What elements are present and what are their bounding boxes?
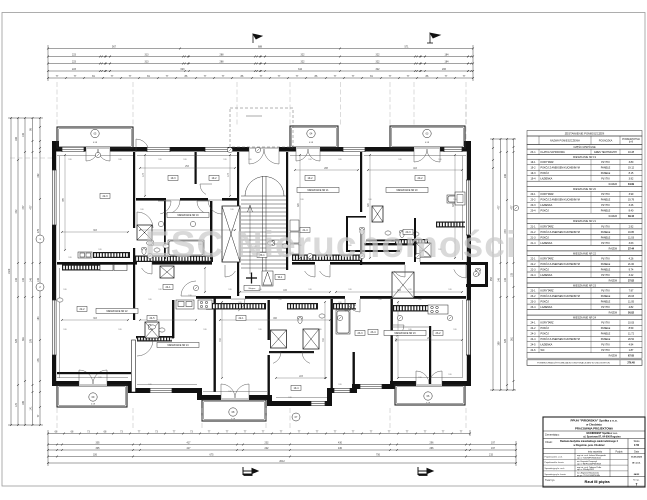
svg-text:04/23: 04/23	[634, 473, 640, 476]
svg-text:305: 305	[96, 442, 101, 445]
svg-text:PŁYTKI: PŁYTKI	[601, 257, 610, 260]
svg-text:623: 623	[181, 68, 186, 71]
svg-text:MIESZKANIE NR 21: MIESZKANIE NR 21	[307, 189, 329, 192]
svg-text:PANELE: PANELE	[601, 268, 611, 271]
svg-text:10.03: 10.03	[628, 322, 635, 325]
svg-text:20-3: 20-3	[531, 204, 537, 207]
svg-text:296: 296	[430, 447, 435, 450]
svg-text:189: 189	[22, 400, 25, 405]
svg-text:KORYTARZ: KORYTARZ	[541, 193, 555, 196]
svg-text:23-3: 23-3	[357, 332, 363, 335]
svg-text:POKÓJ: POKÓJ	[541, 301, 550, 304]
svg-text:22-2: 22-2	[79, 308, 85, 311]
svg-text:477: 477	[511, 205, 514, 210]
svg-text:23-4: 23-4	[370, 331, 376, 334]
svg-text:50.82: 50.82	[628, 312, 635, 315]
svg-text:43.28: 43.28	[628, 151, 635, 154]
svg-text:PRACOWNIA PROJEKTOWA: PRACOWNIA PROJEKTOWA	[575, 427, 613, 431]
svg-text:PANELE: PANELE	[601, 210, 611, 213]
svg-text:223: 223	[72, 61, 77, 64]
svg-text:PANELE: PANELE	[601, 199, 611, 202]
svg-text:326: 326	[93, 454, 98, 457]
svg-text:[m²]: [m²]	[629, 141, 633, 144]
svg-text:KORYTARZ: KORYTARZ	[541, 290, 555, 293]
svg-text:RAZEM: RAZEM	[609, 312, 617, 315]
svg-text:PŁYTKI: PŁYTKI	[601, 290, 610, 293]
svg-text:16.06.2023: 16.06.2023	[631, 457, 643, 459]
svg-text:PŁYTKI: PŁYTKI	[601, 161, 610, 164]
svg-text:29.52: 29.52	[628, 338, 635, 341]
svg-text:19.86: 19.86	[628, 231, 635, 234]
svg-text:3.22: 3.22	[629, 274, 634, 277]
svg-text:39.44: 39.44	[628, 215, 635, 218]
svg-text:RAZEM: RAZEM	[609, 215, 617, 218]
svg-text:29.03: 29.03	[628, 295, 635, 298]
svg-text:180: 180	[15, 136, 18, 141]
svg-text:Data: Data	[634, 450, 640, 453]
svg-text:378: 378	[30, 338, 33, 343]
svg-text:276.48: 276.48	[627, 362, 635, 365]
svg-text:361: 361	[511, 336, 514, 341]
svg-text:MIESZKANIE NR 22: MIESZKANIE NR 22	[106, 310, 128, 313]
svg-text:22-2: 22-2	[531, 263, 537, 266]
svg-text:ŁAZIENKA: ŁAZIENKA	[541, 178, 553, 181]
svg-text:146: 146	[22, 132, 25, 137]
svg-text:19-4: 19-4	[531, 178, 537, 181]
svg-text:37.82: 37.82	[628, 279, 635, 282]
svg-text:MIESZKANIE NR 22: MIESZKANIE NR 22	[573, 252, 597, 255]
svg-text:KORYTARZ: KORYTARZ	[541, 257, 555, 260]
svg-text:20-2: 20-2	[417, 177, 423, 180]
svg-text:W. arch.: W. arch.	[632, 462, 641, 464]
svg-text:24-5: 24-5	[531, 344, 537, 347]
svg-text:POSADZKA: POSADZKA	[599, 139, 613, 142]
svg-text:477: 477	[498, 205, 501, 210]
svg-text:POKÓJ: POKÓJ	[541, 327, 550, 330]
svg-text:19-3: 19-3	[531, 172, 537, 175]
svg-text:POKÓJ Z ANEKSEM KUCHENNYM: POKÓJ Z ANEKSEM KUCHENNYM	[541, 295, 580, 298]
svg-text:POKÓJ Z ANEKSEM KUCHENNYM: POKÓJ Z ANEKSEM KUCHENNYM	[541, 199, 580, 202]
svg-text:23-2: 23-2	[435, 332, 441, 335]
svg-text:PŁYTKI: PŁYTKI	[601, 242, 610, 245]
svg-text:378: 378	[504, 338, 507, 343]
svg-text:146: 146	[498, 277, 501, 282]
svg-text:184: 184	[445, 61, 450, 64]
svg-text:202: 202	[265, 442, 270, 445]
svg-text:34.99: 34.99	[628, 183, 635, 186]
svg-text:146: 146	[37, 277, 40, 282]
svg-text:202: 202	[265, 447, 270, 450]
svg-text:197: 197	[491, 447, 496, 450]
svg-text:PANELE: PANELE	[601, 263, 611, 266]
svg-text:GRES TECHNICZNY: GRES TECHNICZNY	[594, 151, 618, 154]
svg-text:344: 344	[298, 68, 303, 71]
svg-text:MIESZKANIE NR 19: MIESZKANIE NR 19	[177, 214, 199, 217]
svg-text:ŁAZIENKA: ŁAZIENKA	[541, 274, 553, 277]
svg-text:PŁYTKI: PŁYTKI	[601, 193, 610, 196]
svg-text:21-3: 21-3	[531, 236, 537, 239]
svg-text:Budowa budynku mieszkalnego wi: Budowa budynku mieszkalnego wielorodzinn…	[560, 440, 618, 443]
svg-text:202: 202	[37, 173, 40, 178]
svg-text:288: 288	[220, 61, 225, 64]
svg-text:146: 146	[30, 277, 33, 282]
svg-text:W-1: W-1	[278, 276, 283, 279]
svg-text:MIESZKANIE NR 19: MIESZKANIE NR 19	[573, 156, 597, 159]
svg-text:3.63: 3.63	[629, 242, 634, 245]
svg-text:223: 223	[72, 54, 77, 57]
svg-text:Rzut III piętra: Rzut III piętra	[584, 479, 610, 484]
svg-text:ŁAZIENKA: ŁAZIENKA	[541, 344, 553, 347]
svg-text:442: 442	[15, 209, 18, 214]
svg-text:po upr. 7131-15/86/PW-Mki: po upr. 7131-15/86/PW-Mki	[577, 474, 601, 477]
svg-text:PŁYTKI: PŁYTKI	[601, 349, 610, 352]
svg-text:7.97: 7.97	[629, 290, 634, 293]
svg-text:KORYTARZ: KORYTARZ	[541, 161, 555, 164]
svg-text:PANELE: PANELE	[601, 236, 611, 239]
svg-text:19-2: 19-2	[531, 167, 537, 170]
svg-text:322: 322	[301, 54, 306, 57]
svg-text:184: 184	[37, 316, 40, 321]
svg-text:1.87: 1.87	[629, 349, 634, 352]
svg-text:1:50: 1:50	[634, 443, 640, 447]
svg-text:POKÓJ: POKÓJ	[541, 268, 550, 271]
svg-text:22-3: 22-3	[102, 195, 108, 198]
svg-text:417: 417	[187, 442, 192, 445]
svg-text:Podpis: Podpis	[615, 451, 623, 453]
svg-text:imię nazwisko: imię nazwisko	[588, 451, 603, 453]
svg-text:ZESTAWIENIE POMIESZCZEŃ: ZESTAWIENIE POMIESZCZEŃ	[565, 132, 605, 136]
svg-text:313: 313	[145, 61, 150, 64]
svg-text:Nr rys.: Nr rys.	[633, 478, 640, 481]
svg-text:23-4: 23-4	[531, 306, 537, 309]
svg-text:CZĘŚCI WSPÓLNE: CZĘŚCI WSPÓLNE	[573, 146, 596, 149]
svg-text:Treść rys.: Treść rys.	[545, 479, 555, 482]
svg-text:675: 675	[210, 454, 215, 457]
svg-text:19.79: 19.79	[628, 199, 635, 202]
svg-text:19-2: 19-2	[211, 177, 217, 180]
svg-text:PPUH "PIROŃSKA" Spółka z o.o.: PPUH "PIROŃSKA" Spółka z o.o.	[570, 418, 617, 423]
svg-text:275: 275	[37, 228, 40, 233]
svg-text:POKÓJ Z ANEKSEM KUCHENNYM: POKÓJ Z ANEKSEM KUCHENNYM	[541, 263, 580, 266]
svg-text:19-3: 19-3	[170, 177, 176, 180]
svg-text:MIESZKANIE NR 24: MIESZKANIE NR 24	[573, 317, 597, 320]
svg-text:24-4: 24-4	[531, 338, 537, 341]
svg-text:417: 417	[187, 447, 192, 450]
svg-text:3.80: 3.80	[629, 161, 634, 164]
svg-text:8.59: 8.59	[629, 327, 634, 330]
svg-text:PANELE: PANELE	[601, 295, 611, 298]
svg-text:PŁYTKI: PŁYTKI	[601, 178, 610, 181]
svg-text:21-2: 21-2	[531, 231, 537, 234]
svg-text:296: 296	[430, 442, 435, 445]
svg-text:20-1: 20-1	[531, 193, 537, 196]
svg-text:23-1: 23-1	[531, 290, 537, 293]
svg-text:ESC Nieruchomości: ESC Nieruchomości	[145, 224, 517, 265]
svg-text:24-1: 24-1	[531, 322, 537, 325]
svg-text:PŁYTKI: PŁYTKI	[601, 274, 610, 277]
svg-text:477: 477	[22, 205, 25, 210]
svg-text:288: 288	[220, 54, 225, 57]
svg-text:223: 223	[72, 68, 77, 71]
svg-text:upr. nr 55/wlkp/2012: upr. nr 55/wlkp/2012	[577, 468, 594, 471]
svg-text:3.92: 3.92	[629, 178, 634, 181]
svg-text:378: 378	[15, 338, 18, 343]
svg-text:MIESZKANIE NR 21: MIESZKANIE NR 21	[573, 220, 597, 223]
svg-text:POKÓJ Z ANEKSEM KUCHENNYM: POKÓJ Z ANEKSEM KUCHENNYM	[541, 231, 580, 234]
svg-text:PŁYTKI: PŁYTKI	[601, 204, 610, 207]
svg-text:24-3: 24-3	[531, 333, 537, 336]
svg-text:37.44: 37.44	[628, 247, 635, 250]
svg-text:PŁYTKI: PŁYTKI	[601, 225, 610, 228]
svg-text:PANELE: PANELE	[601, 167, 611, 170]
svg-text:RAZEM: RAZEM	[609, 183, 617, 186]
svg-text:PANELE: PANELE	[601, 338, 611, 341]
svg-text:146: 146	[15, 277, 18, 282]
svg-text:3.26: 3.26	[629, 204, 634, 207]
svg-text:430: 430	[338, 447, 343, 450]
svg-text:22-1: 22-1	[238, 317, 244, 320]
svg-text:20-2: 20-2	[531, 199, 537, 202]
svg-text:4.94: 4.94	[629, 344, 634, 347]
svg-text:4.26: 4.26	[629, 257, 634, 260]
svg-text:197: 197	[491, 442, 496, 445]
svg-text:KORYTARZ: KORYTARZ	[541, 322, 555, 325]
svg-text:22-4: 22-4	[531, 274, 537, 277]
svg-text:24-1: 24-1	[165, 286, 171, 289]
svg-text:688: 688	[258, 46, 263, 49]
svg-text:NAZWA POMIESZCZENIA: NAZWA POMIESZCZENIA	[550, 139, 580, 142]
svg-text:7: 7	[636, 482, 638, 486]
svg-text:upr. nr 7131/WPOKK/4/2021: upr. nr 7131/WPOKK/4/2021	[577, 457, 601, 460]
svg-text:24-2: 24-2	[531, 327, 537, 330]
svg-text:POKÓJ Z ANEKSEM KUCHENNYM: POKÓJ Z ANEKSEM KUCHENNYM	[541, 338, 580, 341]
svg-text:103: 103	[511, 272, 514, 277]
svg-text:Sprawdzający br. arch.: Sprawdzający br. arch.	[545, 468, 566, 470]
svg-text:PANELE: PANELE	[601, 327, 611, 330]
svg-text:206: 206	[504, 173, 507, 178]
svg-text:POKÓJ Z ANEKSEM KUCHENNYM: POKÓJ Z ANEKSEM KUCHENNYM	[541, 167, 580, 170]
svg-text:322: 322	[376, 54, 381, 57]
svg-text:1320: 1320	[8, 268, 11, 274]
svg-text:ŁAZIENKA: ŁAZIENKA	[541, 204, 553, 207]
svg-text:Projektował br. arch.: Projektował br. arch.	[545, 455, 564, 458]
svg-text:3.99: 3.99	[629, 193, 634, 196]
svg-text:Skala: Skala	[634, 441, 640, 443]
svg-text:Obiekt:: Obiekt:	[545, 441, 553, 444]
svg-text:PANELE: PANELE	[601, 172, 611, 175]
svg-text:477: 477	[30, 205, 33, 210]
svg-text:19-1: 19-1	[531, 161, 537, 164]
svg-text:399: 399	[498, 341, 501, 346]
svg-text:22-3: 22-3	[531, 268, 537, 271]
svg-text:11.72: 11.72	[628, 333, 635, 336]
svg-text:21-4: 21-4	[531, 242, 537, 245]
svg-text:24-5: 24-5	[149, 317, 155, 320]
svg-text:8.40: 8.40	[629, 210, 634, 213]
svg-text:322: 322	[376, 61, 381, 64]
svg-text:19-2: 19-2	[307, 177, 313, 180]
svg-text:PŁYTKI: PŁYTKI	[601, 344, 610, 347]
svg-text:571: 571	[405, 46, 410, 49]
svg-text:184: 184	[445, 54, 450, 57]
svg-text:ŁAZIENKA: ŁAZIENKA	[541, 306, 553, 309]
svg-text:MIESZKANIE NR 23: MIESZKANIE NR 23	[394, 332, 416, 335]
svg-text:430: 430	[338, 442, 343, 445]
svg-text:Sprawdzający br. konstr.: Sprawdzający br. konstr.	[545, 473, 567, 476]
svg-text:Miejsce: Miejsce	[249, 288, 257, 290]
svg-text:PANELE: PANELE	[601, 301, 611, 304]
svg-text:206: 206	[442, 68, 447, 71]
svg-text:9.74: 9.74	[629, 268, 634, 271]
svg-text:21-1: 21-1	[531, 225, 537, 228]
svg-text:21.00: 21.00	[628, 263, 635, 266]
svg-text:RAZEM: RAZEM	[609, 355, 617, 358]
svg-text:PŁYTKI: PŁYTKI	[601, 322, 610, 325]
svg-text:146: 146	[504, 277, 507, 282]
svg-text:146: 146	[22, 277, 25, 282]
svg-text:w Rogoźnie, pow. Chodzież: w Rogoźnie, pow. Chodzież	[573, 444, 605, 447]
svg-text:22-1: 22-1	[531, 257, 537, 260]
svg-text:POKÓJ: POKÓJ	[541, 333, 550, 336]
svg-text:POKÓJ: POKÓJ	[541, 172, 550, 175]
svg-text:MIESZKANIE NR 20: MIESZKANIE NR 20	[396, 189, 418, 192]
svg-text:POKÓJ: POKÓJ	[541, 210, 550, 213]
svg-text:MIESZKANIE NR 23: MIESZKANIE NR 23	[573, 284, 597, 287]
svg-text:Projektował br. konstr.: Projektował br. konstr.	[545, 461, 565, 464]
svg-text:ul. Sportowa 87, 64-800 Rogoźn: ul. Sportowa 87, 64-800 Rogoźno	[583, 436, 621, 439]
svg-text:23-2: 23-2	[531, 295, 537, 298]
svg-text:PŁYTKI: PŁYTKI	[601, 306, 610, 309]
svg-text:954: 954	[490, 276, 493, 281]
svg-text:RAZEM: RAZEM	[609, 247, 617, 250]
svg-text:67.05: 67.05	[628, 355, 635, 358]
svg-text:756: 756	[376, 454, 381, 457]
svg-text:2.92: 2.92	[629, 225, 634, 228]
svg-text:24-6: 24-6	[531, 349, 537, 352]
svg-text:ŁAZIENKA: ŁAZIENKA	[541, 242, 553, 245]
svg-text:KORYTARZ: KORYTARZ	[541, 225, 555, 228]
svg-text:176: 176	[37, 358, 40, 363]
svg-text:567: 567	[112, 46, 117, 49]
svg-text:322: 322	[376, 68, 381, 71]
svg-text:305: 305	[96, 447, 101, 450]
svg-text:313: 313	[145, 54, 150, 57]
svg-text:POWIERZCHNIA UŻYTKOWA CAŁEJ KO: POWIERZCHNIA UŻYTKOWA CAŁEJ KONDYGNACJI …	[537, 362, 610, 365]
svg-text:PANELE: PANELE	[601, 333, 611, 336]
svg-text:322: 322	[301, 61, 306, 64]
svg-text:KLATKA SCHODOWA: KLATKA SCHODOWA	[541, 151, 566, 154]
svg-text:361: 361	[22, 336, 25, 341]
svg-text:19.12: 19.12	[628, 167, 635, 170]
svg-text:PANELE: PANELE	[601, 231, 611, 234]
svg-text:8.15: 8.15	[629, 172, 634, 175]
svg-text:upr. nr WKP/0150/PWOK/08: upr. nr WKP/0150/PWOK/08	[577, 462, 601, 465]
svg-text:172: 172	[15, 402, 18, 407]
svg-text:11.03: 11.03	[628, 236, 635, 239]
svg-text:WC: WC	[541, 349, 545, 352]
svg-text:141: 141	[30, 406, 33, 411]
svg-text:23-3: 23-3	[531, 301, 537, 304]
svg-text:215: 215	[489, 454, 494, 457]
svg-text:20-4: 20-4	[531, 210, 537, 213]
svg-text:4.82: 4.82	[629, 306, 634, 309]
svg-text:POWIERZCHNIA: POWIERZCHNIA	[622, 138, 640, 141]
svg-text:2K-1: 2K-1	[530, 151, 536, 154]
svg-text:19-4: 19-4	[293, 387, 299, 390]
svg-text:11.05: 11.05	[628, 301, 635, 304]
svg-text:RAZEM: RAZEM	[609, 279, 617, 282]
svg-text:Zamawiający:: Zamawiający:	[545, 434, 560, 437]
svg-text:MIESZKANIE NR 20: MIESZKANIE NR 20	[573, 188, 597, 191]
svg-text:POKÓJ: POKÓJ	[541, 236, 550, 239]
svg-text:MIESZKANIE NR 24: MIESZKANIE NR 24	[167, 344, 189, 347]
svg-text:2012: 2012	[279, 460, 285, 463]
